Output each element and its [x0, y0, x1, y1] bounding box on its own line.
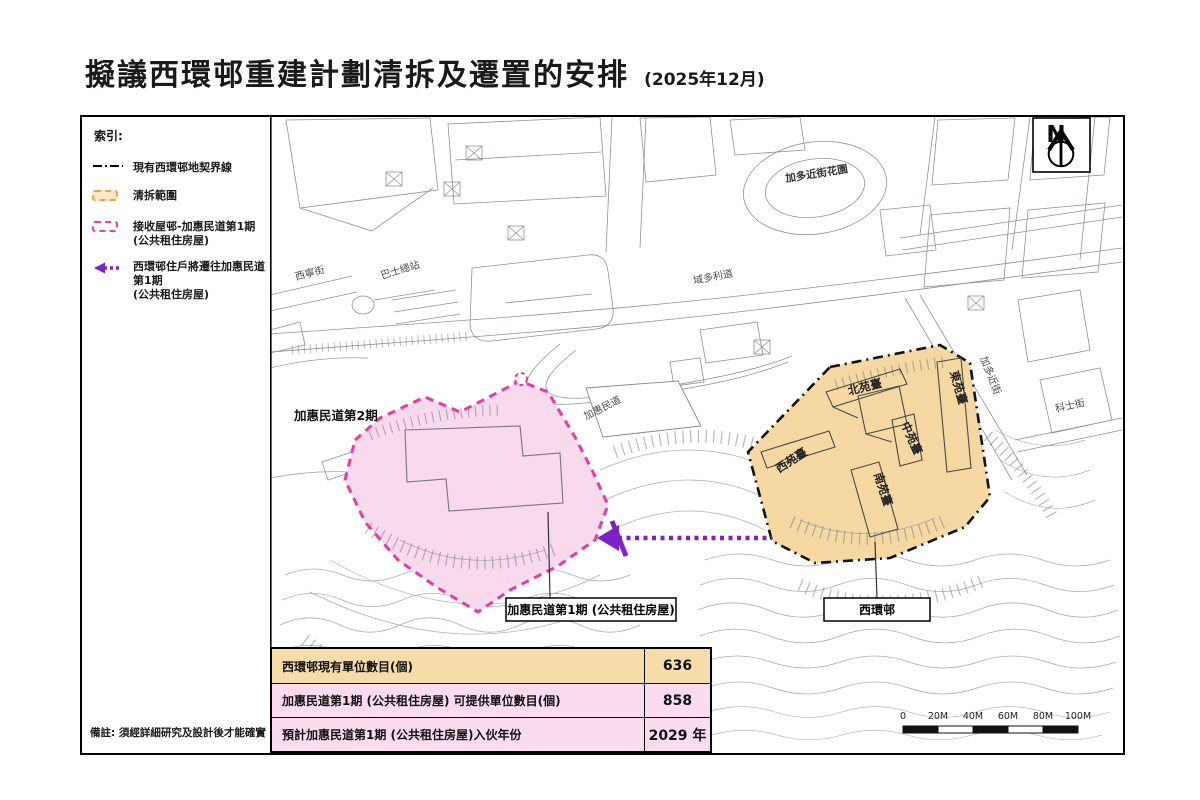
boundary-loop [515, 373, 527, 385]
page-title: 擬議西環邨重建計劃清拆及遷置的安排 (2025年12月) [85, 50, 765, 94]
legend-item-demolition: 清拆範圍 [92, 189, 177, 203]
table-row-value: 636 [644, 649, 710, 683]
table-row: 加惠民道第1期 (公共租住房屋) 可提供單位數目(個) 858 [272, 683, 710, 717]
footnote: 備註: 須經詳細研究及設計後才能確實 [90, 725, 268, 740]
scale-label-40: 40M [963, 711, 983, 722]
legend-item-receiving: 接收屋邨-加惠民道第1期 (公共租住房屋) [92, 220, 255, 248]
phase1-callout-label: 加惠民道第1期 (公共租住房屋) [506, 602, 675, 617]
plan-frame: 索引: 現有西環邨地契界線 清拆範圍 接收屋邨-加惠民道第1期 (公共租住房屋) [80, 115, 1125, 755]
table-row-value: 2029 年 [644, 718, 710, 751]
label-cadogan-garden: 加多近街花園 [783, 162, 848, 185]
scale-label-100: 100M [1065, 711, 1091, 722]
scale-label-60: 60M [998, 711, 1018, 722]
relocation-arrow [597, 521, 772, 556]
demolition-area-icon [92, 190, 126, 201]
scale-label-80: 80M [1033, 711, 1053, 722]
street-label-sai-ning: 西寧街 [294, 263, 326, 283]
street-label-bus-terminus: 巴士總站 [379, 258, 421, 282]
legend-item-label: 接收屋邨-加惠民道第1期 (公共租住房屋) [133, 220, 255, 248]
receiving-area-icon [92, 221, 126, 232]
area-label-phase2: 加惠民道第2期 [293, 408, 378, 423]
legend-item-label-line2: (公共租住房屋) [133, 288, 209, 301]
title-text: 擬議西環邨重建計劃清拆及遷置的安排 [85, 58, 629, 93]
relocation-arrow-icon [92, 261, 126, 275]
legend-item-boundary: 現有西環邨地契界線 [92, 161, 232, 175]
table-row: 預計加惠民道第1期 (公共租住房屋)入伙年份 2029 年 [272, 717, 710, 751]
legend-item-label: 清拆範圍 [133, 189, 177, 203]
legend-item-label: 現有西環邨地契界線 [133, 161, 232, 175]
sai-wan-estate-callout-label: 西環邨 [859, 602, 895, 617]
receiving-site-phase1 [345, 373, 701, 612]
legend-heading: 索引: [94, 127, 123, 144]
street-label-victoria-road: 域多利道 [692, 267, 734, 287]
table-row-label: 預計加惠民道第1期 (公共租住房屋)入伙年份 [272, 718, 644, 751]
legend-item-label-line2: (公共租住房屋) [133, 234, 209, 247]
table-row-label: 西環邨現有單位數目(個) [272, 649, 644, 683]
table-row: 西環邨現有單位數目(個) 636 [272, 649, 710, 683]
table-row-value: 858 [644, 684, 710, 717]
scale-label-0: 0 [900, 711, 906, 722]
legend-item-label: 西環邨住戶將遷往加惠民道第1期 (公共租住房屋) [133, 260, 270, 302]
legend-item-relocation: 西環邨住戶將遷往加惠民道第1期 (公共租住房屋) [92, 260, 270, 302]
scale-label-20: 20M [928, 711, 948, 722]
legend-item-label-line1: 西環邨住戶將遷往加惠民道第1期 [133, 260, 265, 287]
title-date: (2025年12月) [644, 70, 765, 90]
legend-panel: 索引: 現有西環邨地契界線 清拆範圍 接收屋邨-加惠民道第1期 (公共租住房屋) [82, 117, 270, 753]
street-label-cadogan: 加多近街 [977, 354, 1004, 396]
dashdot-line-icon [92, 162, 126, 170]
table-row-label: 加惠民道第1期 (公共租住房屋) 可提供單位數目(個) [272, 684, 644, 717]
unit-table: 西環邨現有單位數目(個) 636 加惠民道第1期 (公共租住房屋) 可提供單位數… [270, 647, 712, 753]
north-arrow: N [1033, 118, 1090, 172]
street-label-forbes: 科士街 [1054, 396, 1086, 415]
scale-bar: 0 20M 40M 60M 80M 100M [900, 711, 1091, 733]
legend-item-label-line1: 接收屋邨-加惠民道第1期 [133, 220, 255, 233]
